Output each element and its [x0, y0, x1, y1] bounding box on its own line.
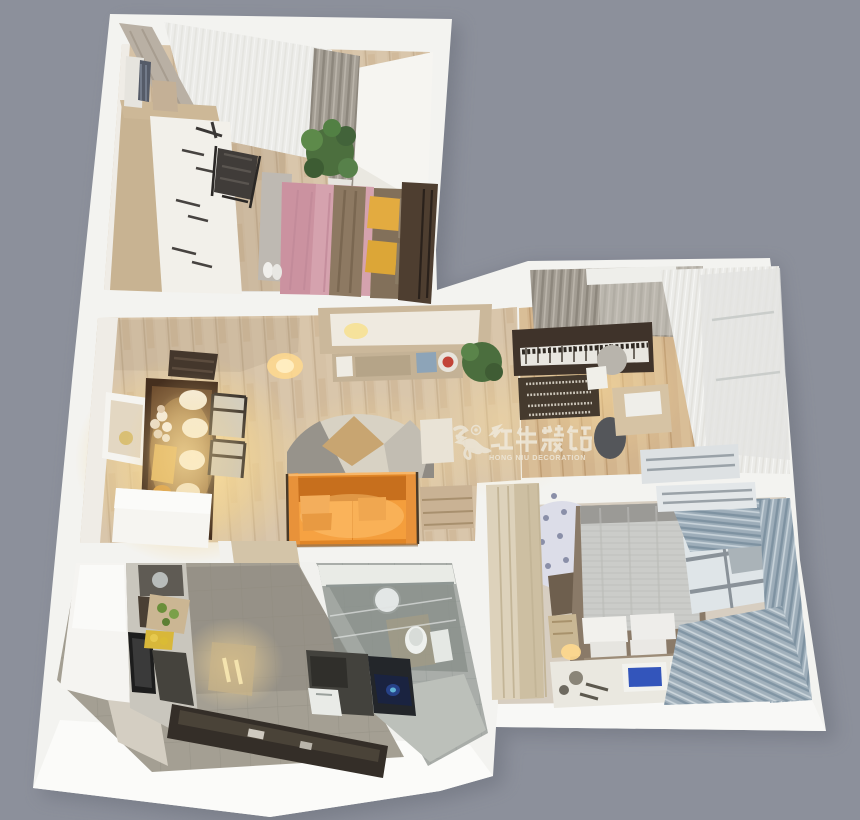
- svg-text:HONG NIU DECORATION: HONG NIU DECORATION: [489, 455, 586, 462]
